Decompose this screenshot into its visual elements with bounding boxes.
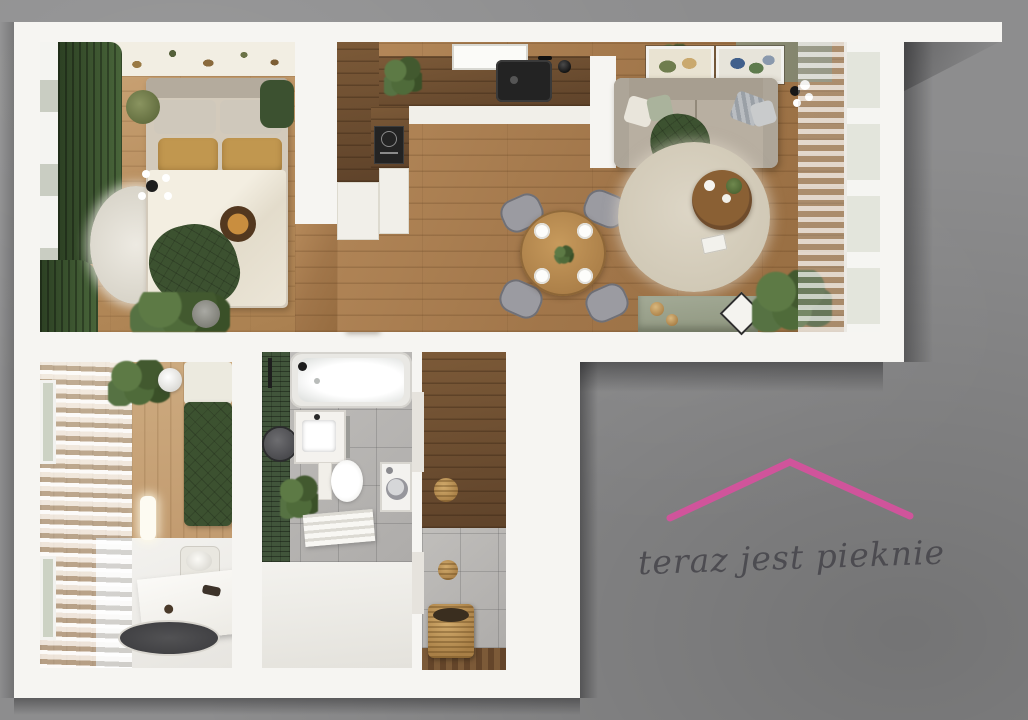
room2-window-2 xyxy=(40,556,56,640)
living-round-rug xyxy=(618,142,770,292)
washer-door xyxy=(386,478,408,500)
console-item-shoes xyxy=(202,584,221,597)
washer-dial xyxy=(386,467,393,474)
coffee-table-plant xyxy=(726,178,742,194)
desk-decor-ball-2 xyxy=(666,314,678,326)
hallway-right-wall xyxy=(506,352,552,697)
place-setting-3 xyxy=(534,268,550,284)
sofa-arm-left xyxy=(614,78,629,168)
sink-drain xyxy=(510,76,518,84)
cooktop xyxy=(374,126,404,164)
bath-mat-rack xyxy=(303,509,376,547)
cooktop-burner xyxy=(381,131,397,147)
table-centerpiece xyxy=(554,245,574,265)
room2-round-rug xyxy=(120,622,218,654)
hallway-door-1 xyxy=(412,392,424,472)
shower-fixture xyxy=(268,358,272,388)
bedroom-pouf-left xyxy=(126,90,160,124)
right-wall-shadow xyxy=(903,40,933,362)
basket-blanket xyxy=(186,551,212,571)
living-bottom-shadow xyxy=(580,362,883,392)
bathroom-lower-area xyxy=(262,562,412,668)
kitchen-peninsula xyxy=(379,168,409,234)
living-window-wall xyxy=(844,42,880,332)
room2-pendant-lamp xyxy=(158,368,182,392)
cooktop-controls xyxy=(380,152,398,154)
toilet-bowl xyxy=(331,460,363,502)
vanity-towel-rail xyxy=(346,416,350,458)
bedroom-pouf-right xyxy=(260,80,294,128)
bedroom-plant-pot xyxy=(192,300,220,328)
bed-pillow-tan-left xyxy=(158,138,218,174)
lower-right-shadow xyxy=(580,362,598,698)
vanity-sink xyxy=(302,420,336,452)
room2-bed-pillow xyxy=(184,362,232,404)
coffee-table-decor-2 xyxy=(722,194,731,203)
coffee-table-decor-1 xyxy=(704,180,715,191)
sink-faucet xyxy=(538,56,552,60)
basket-opening xyxy=(433,608,469,622)
kitchen-counter-front xyxy=(379,106,590,124)
room2-bed-blanket xyxy=(184,402,232,526)
bathroom-mirror xyxy=(264,428,296,460)
left-wall-shadow xyxy=(0,22,14,698)
desk-decor-ball-1 xyxy=(650,302,664,316)
toilet-tank xyxy=(318,462,332,500)
room2-wall-lamp xyxy=(140,496,156,540)
kitchen-end-wall xyxy=(590,56,616,168)
wall-bottom xyxy=(14,668,580,698)
kitchen-lower-cabinet xyxy=(337,182,379,240)
bathtub-drain xyxy=(314,378,320,384)
wicker-basket xyxy=(428,604,474,658)
bathroom-vanity xyxy=(294,410,346,464)
rattan-ball-1 xyxy=(434,478,458,502)
place-setting-1 xyxy=(534,223,550,239)
doorway-floor xyxy=(295,224,337,332)
logo-roof-icon xyxy=(650,452,922,526)
place-setting-4 xyxy=(577,268,593,284)
bottom-wall-shadow xyxy=(14,697,580,715)
pendant-light-1 xyxy=(558,60,571,73)
hallway-wood-panel-wall xyxy=(422,352,506,528)
room2-window-1 xyxy=(40,380,56,464)
kitchen-sink xyxy=(496,60,552,102)
floor-plan-render: teraz jest pieknie xyxy=(0,0,1028,720)
hallway-door-2 xyxy=(412,552,424,614)
counter-plant xyxy=(384,56,422,98)
breakfast-tray xyxy=(220,206,256,242)
rattan-ball-2 xyxy=(438,560,458,580)
wall-right-lower xyxy=(552,352,580,697)
wall-right-upper xyxy=(880,22,904,362)
vanity-tap xyxy=(314,414,320,420)
bed-pillow-tan-right xyxy=(222,138,282,174)
watermark-text: teraz jest pieknie xyxy=(637,533,938,582)
bathtub-faucet xyxy=(298,362,307,371)
wall-bedroom-kitchen xyxy=(295,42,337,224)
washing-machine xyxy=(380,462,412,512)
wall-room2-bathroom xyxy=(232,352,262,670)
living-sheer-curtain xyxy=(798,42,844,332)
bedroom-curtain-bottom xyxy=(40,260,98,332)
bedroom-ceiling-lamp xyxy=(146,180,158,192)
bed-pillow-left xyxy=(154,100,216,134)
wall-top xyxy=(14,22,1002,42)
place-setting-2 xyxy=(577,223,593,239)
console-item-bottle xyxy=(164,604,174,614)
